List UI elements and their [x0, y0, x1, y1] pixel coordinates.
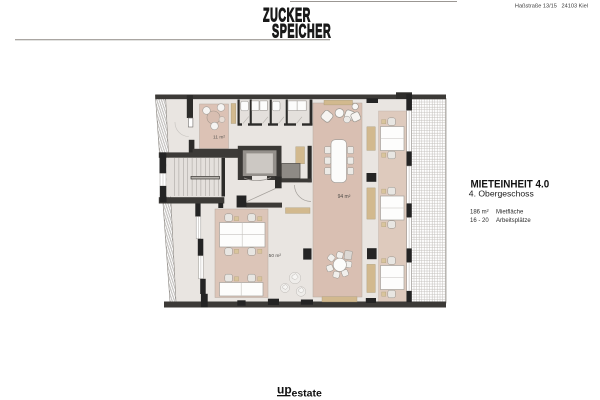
svg-text:4. Obergeschoss: 4. Obergeschoss — [469, 189, 534, 199]
svg-text:50 m²: 50 m² — [269, 253, 282, 259]
svg-text:11 m²: 11 m² — [213, 135, 225, 141]
svg-text:16 - 20: 16 - 20 — [470, 218, 489, 224]
svg-text:186 m²: 186 m² — [470, 210, 489, 216]
svg-text:up: up — [277, 383, 292, 397]
svg-text:94 m²: 94 m² — [338, 194, 351, 200]
svg-text:Mietfläche: Mietfläche — [496, 210, 524, 216]
svg-text:Haßstraße 13/15 24103 Kiel: Haßstraße 13/15 24103 Kiel — [515, 4, 588, 10]
svg-text:estate: estate — [292, 388, 323, 400]
svg-text:Arbeitsplätze: Arbeitsplätze — [496, 218, 531, 224]
